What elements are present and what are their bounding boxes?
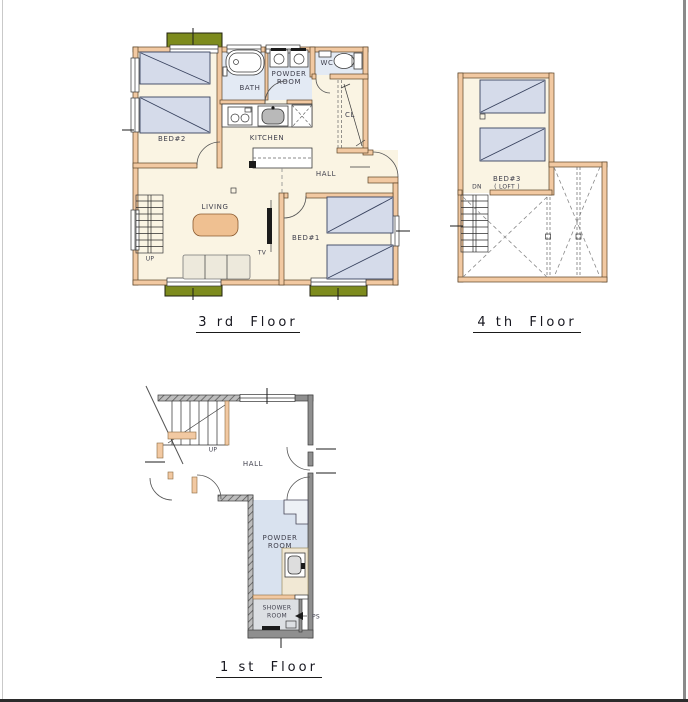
- table-icon: [193, 214, 238, 236]
- sink-icon: [285, 553, 305, 577]
- first-floor-title: 1 st Floor: [216, 660, 322, 678]
- fourth-floor-plan: [450, 73, 607, 282]
- bathtub-icon: [223, 50, 264, 76]
- window: [240, 388, 295, 404]
- third-floor-plan: [122, 28, 410, 300]
- fourth-floor-title: 4 th Floor: [473, 315, 581, 333]
- refrigerator-icon: [292, 105, 312, 127]
- island-counter: [249, 148, 312, 168]
- first-floor-plan: [145, 386, 336, 648]
- kitchen-counter: [222, 104, 312, 127]
- kitchen-sink-icon: [258, 106, 288, 126]
- sofa-icon: [183, 255, 250, 279]
- stove-icon: [228, 107, 252, 125]
- floor-plan-sheet: BED#2 BATH POWDER ROOM WC CL KITCHEN HAL…: [0, 0, 688, 702]
- third-floor-title: 3 rd Floor: [196, 315, 300, 333]
- plan-drawing: [0, 0, 688, 702]
